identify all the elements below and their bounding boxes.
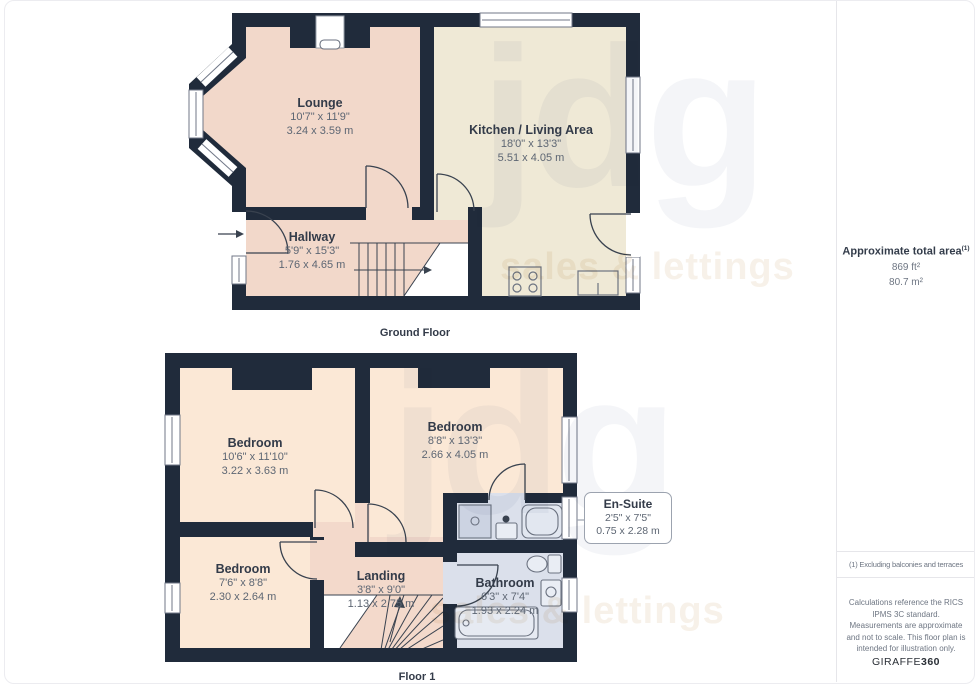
room-label-hallway: Hallway 5'9" x 15'3" 1.76 x 4.65 m — [279, 229, 346, 272]
room-label-bedroom-1: Bedroom 10'6" x 11'10" 3.22 x 3.63 m — [222, 435, 289, 478]
room-label-kitchen-living: Kitchen / Living Area 18'0" x 13'3" 5.51… — [469, 122, 593, 165]
disclaimer-text: Calculations reference the RICS IPMS 3C … — [846, 597, 966, 655]
room-label-bedroom-2: Bedroom 8'8" x 13'3" 2.66 x 4.05 m — [422, 419, 489, 462]
floor1-caption: Floor 1 — [399, 671, 436, 683]
floorplan-page: jdg sales & lettings jdg sales & letting… — [0, 0, 980, 693]
footnote-text: (1) Excluding balconies and terraces — [837, 551, 975, 578]
room-label-landing: Landing 3'8" x 9'0" 1.13 x 2.75 m — [348, 568, 415, 611]
room-label-lounge: Lounge 10'7" x 11'9" 3.24 x 3.59 m — [287, 95, 354, 138]
ensuite-bath-icon — [522, 505, 562, 538]
ground-floor-caption: Ground Floor — [380, 327, 450, 339]
ground-floor-plan — [140, 0, 660, 330]
fireplace-icon — [316, 16, 344, 49]
bathroom-sink-icon — [541, 580, 561, 606]
room-label-bedroom-3: Bedroom 7'6" x 8'8" 2.30 x 2.64 m — [210, 561, 277, 604]
footnote-marker: (1) — [962, 245, 970, 252]
total-area-ft: 869 ft² — [837, 262, 975, 273]
total-area-m: 80.7 m² — [837, 277, 975, 288]
total-area-heading: Approximate total area(1) — [837, 245, 975, 258]
ensuite-callout: En-Suite 2'5" x 7'5" 0.75 x 2.28 m — [584, 492, 672, 544]
giraffe360-logo: GIRAFFE360 — [837, 656, 975, 668]
shower-icon — [459, 505, 491, 538]
room-label-bathroom: Bathroom 6'3" x 7'4" 1.93 x 2.24 m — [472, 575, 539, 618]
total-area-block: Approximate total area(1) 869 ft² 80.7 m… — [837, 245, 975, 288]
bathroom-toilet-icon — [527, 555, 561, 573]
sidebar: Approximate total area(1) 869 ft² 80.7 m… — [836, 1, 975, 682]
